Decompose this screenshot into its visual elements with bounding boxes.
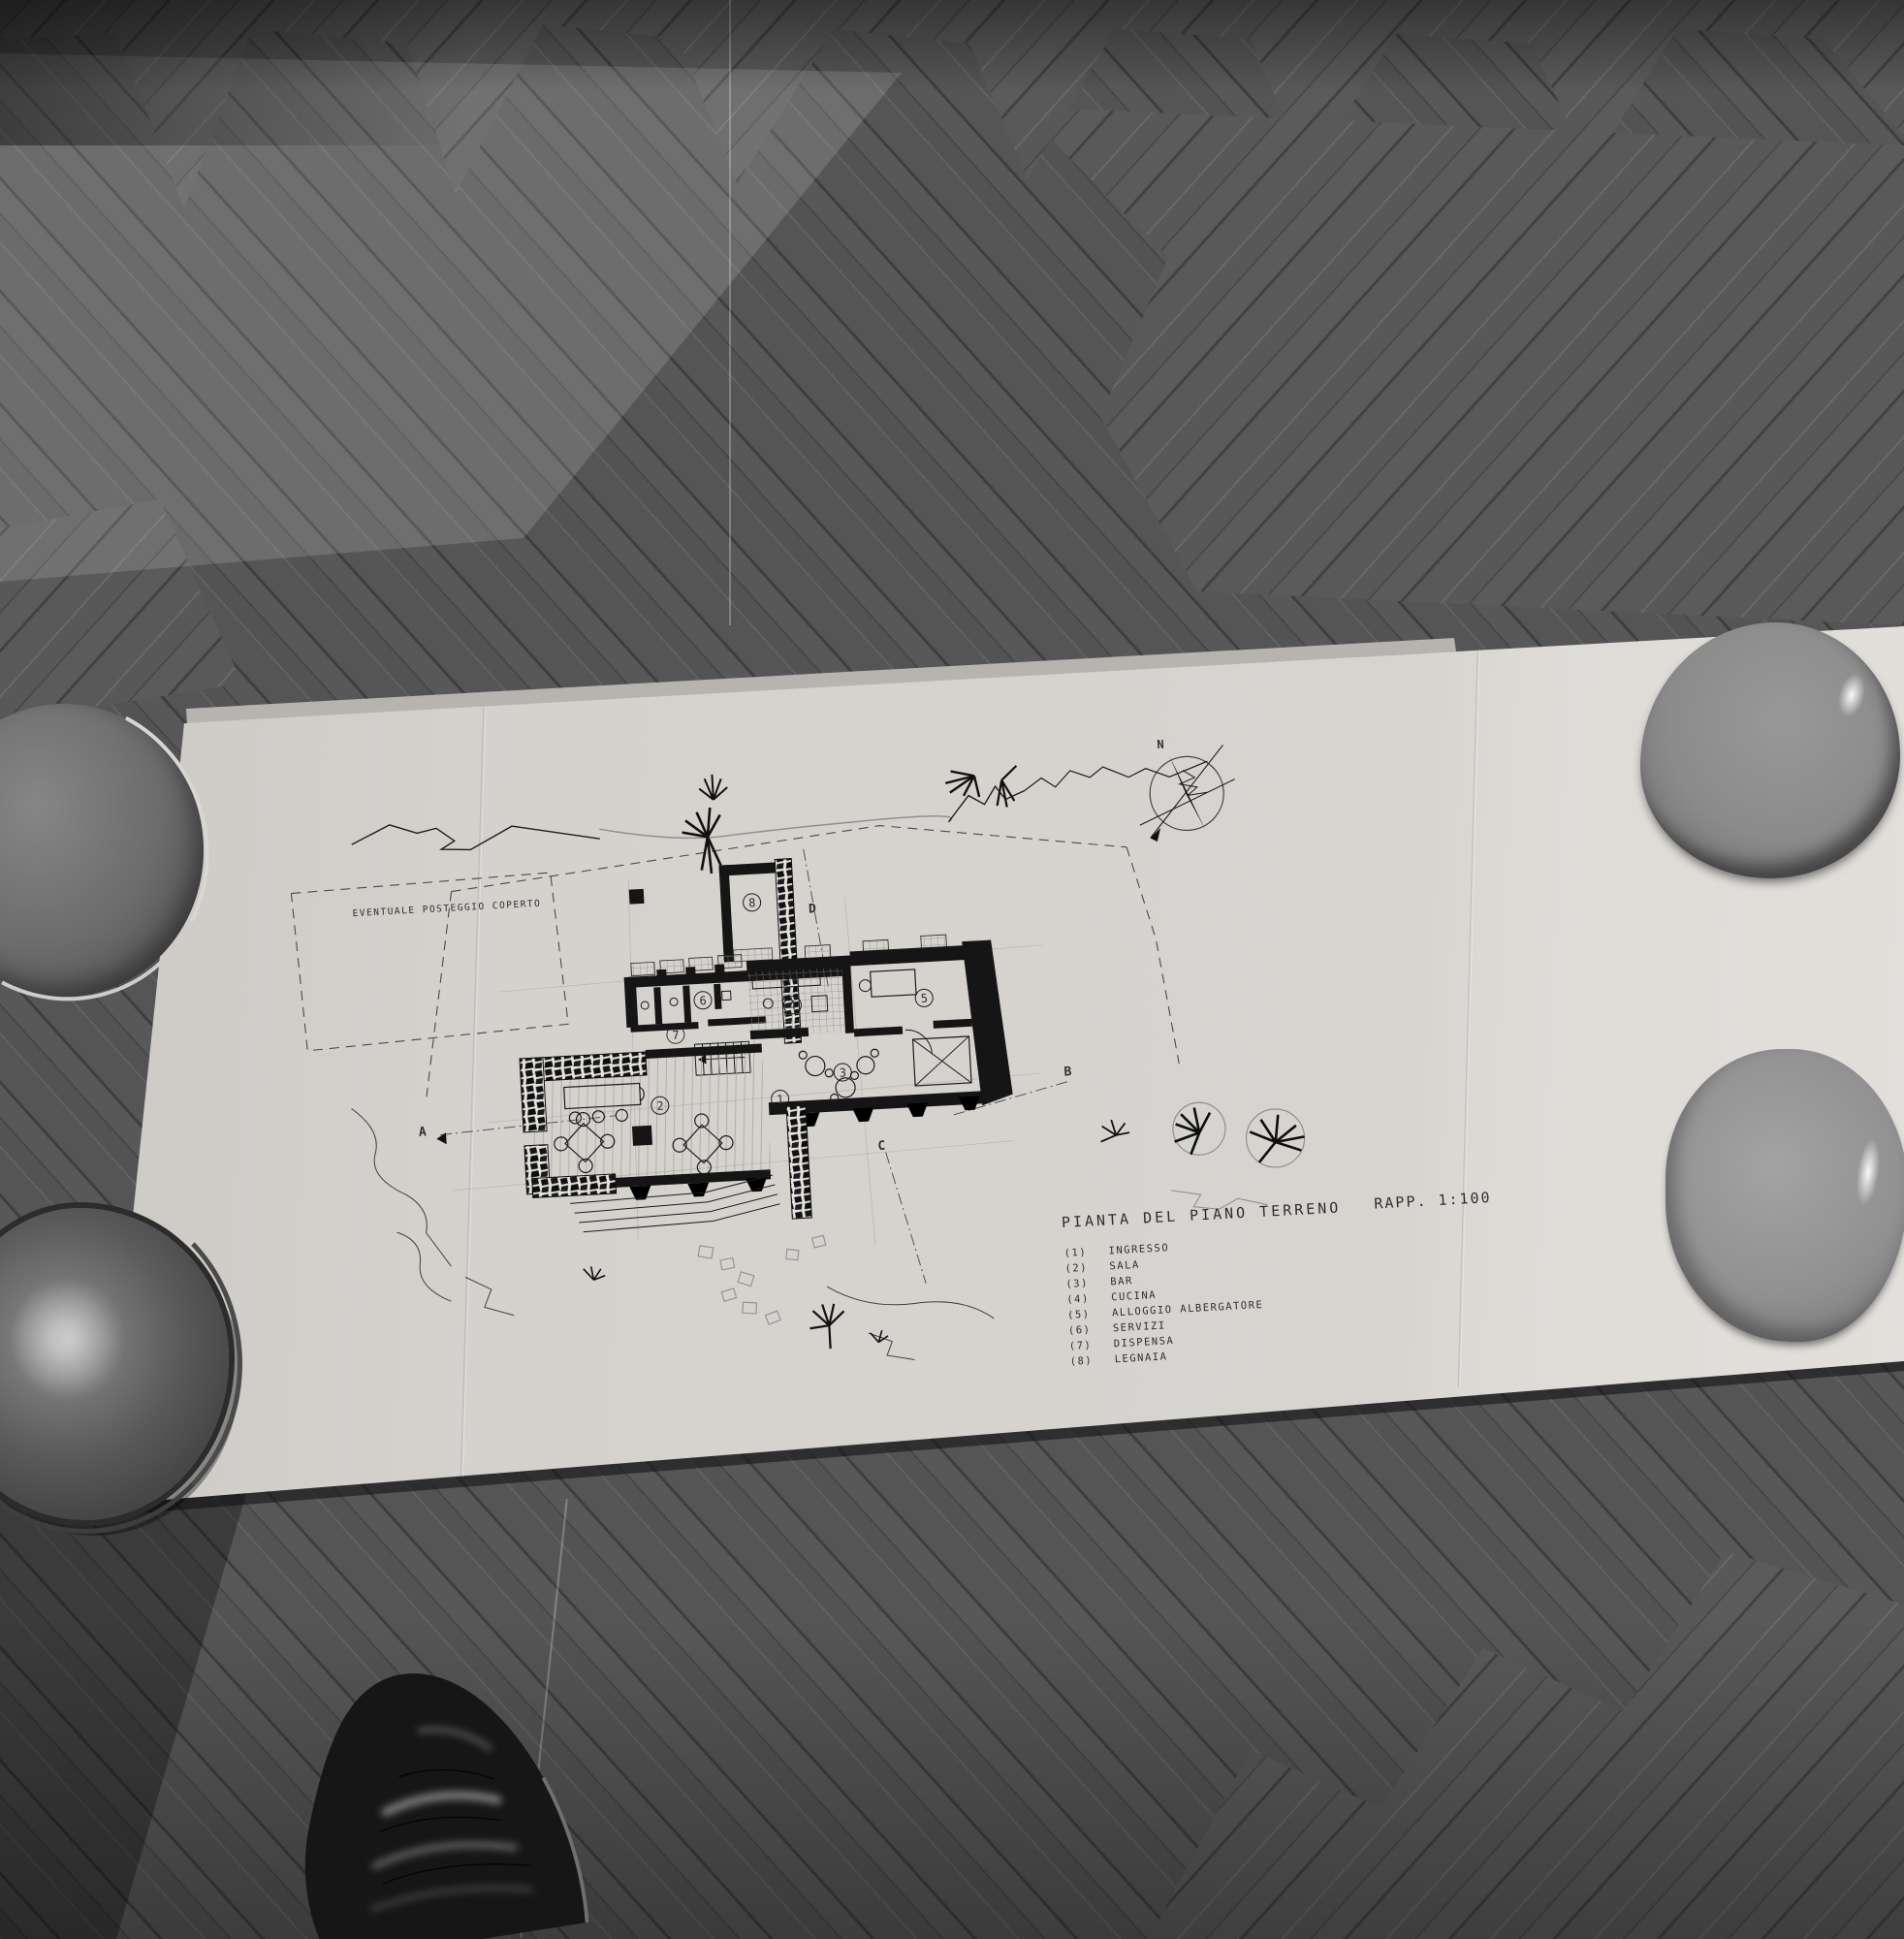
legend-label: SALA bbox=[1109, 1259, 1140, 1273]
bowl-highlight bbox=[1833, 670, 1869, 719]
legend-num: (4) bbox=[1066, 1293, 1090, 1306]
room-number: 3 bbox=[839, 1065, 846, 1079]
legend-label: DISPENSA bbox=[1113, 1335, 1174, 1350]
section-letter-c: C bbox=[877, 1139, 886, 1154]
site-horizon-sketch bbox=[350, 761, 1210, 857]
legend-label: BAR bbox=[1110, 1275, 1133, 1287]
room-number: 5 bbox=[920, 992, 928, 1005]
bowl-highlight bbox=[10, 1276, 126, 1402]
title-block: PIANTA DEL PIANO TERRENO RAPP. 1:100 (1)… bbox=[1061, 1189, 1499, 1368]
legend-num: (1) bbox=[1063, 1247, 1087, 1259]
section-letter-a: A bbox=[419, 1125, 428, 1139]
legend-num: (7) bbox=[1069, 1340, 1093, 1352]
site-marker-square bbox=[629, 889, 645, 905]
legend-label: LEGNAIA bbox=[1114, 1351, 1167, 1365]
room-number: 6 bbox=[699, 994, 707, 1007]
legend-num: (8) bbox=[1069, 1355, 1093, 1368]
site-trees-right bbox=[1099, 1097, 1309, 1215]
bowl-highlight bbox=[1853, 1137, 1884, 1207]
site-note-label: EVENTUALE POSTEGGIO COPERTO bbox=[352, 899, 541, 920]
room-number: 8 bbox=[748, 896, 756, 909]
section-letter-d: D bbox=[809, 902, 817, 916]
room-number: 1 bbox=[777, 1093, 784, 1106]
legend-num: (6) bbox=[1068, 1324, 1092, 1337]
plank-seam bbox=[729, 0, 731, 625]
stepping-stones bbox=[697, 1235, 830, 1328]
dining-hall bbox=[520, 1039, 774, 1206]
pine-tree-sketches bbox=[679, 758, 1021, 875]
room-number: 2 bbox=[656, 1099, 664, 1113]
legend-num: (5) bbox=[1067, 1309, 1091, 1321]
photo-floorplan-on-parquet: EVENTUALE POSTEGGIO COPERTO N bbox=[0, 0, 1904, 1939]
plan-title: PIANTA DEL PIANO TERRENO bbox=[1061, 1198, 1341, 1231]
small-plants bbox=[584, 1251, 889, 1362]
fireplace bbox=[632, 1126, 652, 1146]
north-compass: N bbox=[1135, 734, 1238, 842]
legend: (1) INGRESSO (2) SALA (3) BAR (4) CUCINA… bbox=[1063, 1237, 1266, 1368]
floor-shadow-top-left bbox=[0, 0, 465, 145]
room-number: 7 bbox=[672, 1029, 680, 1042]
legend-num: (3) bbox=[1065, 1278, 1089, 1290]
plan-scale: RAPP. 1:100 bbox=[1374, 1189, 1492, 1213]
legend-label: SERVIZI bbox=[1113, 1319, 1166, 1334]
building-plan bbox=[510, 847, 1025, 1337]
room-number: 4 bbox=[789, 999, 797, 1012]
bowl-bottom-right bbox=[1666, 1049, 1904, 1342]
bowl-bottom-left bbox=[0, 1208, 229, 1520]
floor-plan-drawing: EVENTUALE POSTEGGIO COPERTO N bbox=[251, 623, 1648, 1472]
small-tree bbox=[1099, 1119, 1129, 1142]
legend-num: (2) bbox=[1064, 1262, 1088, 1275]
north-label: N bbox=[1157, 738, 1164, 751]
section-letter-b: B bbox=[1063, 1065, 1072, 1079]
legend-label: INGRESSO bbox=[1108, 1242, 1169, 1256]
legend-label: CUCINA bbox=[1111, 1289, 1158, 1304]
